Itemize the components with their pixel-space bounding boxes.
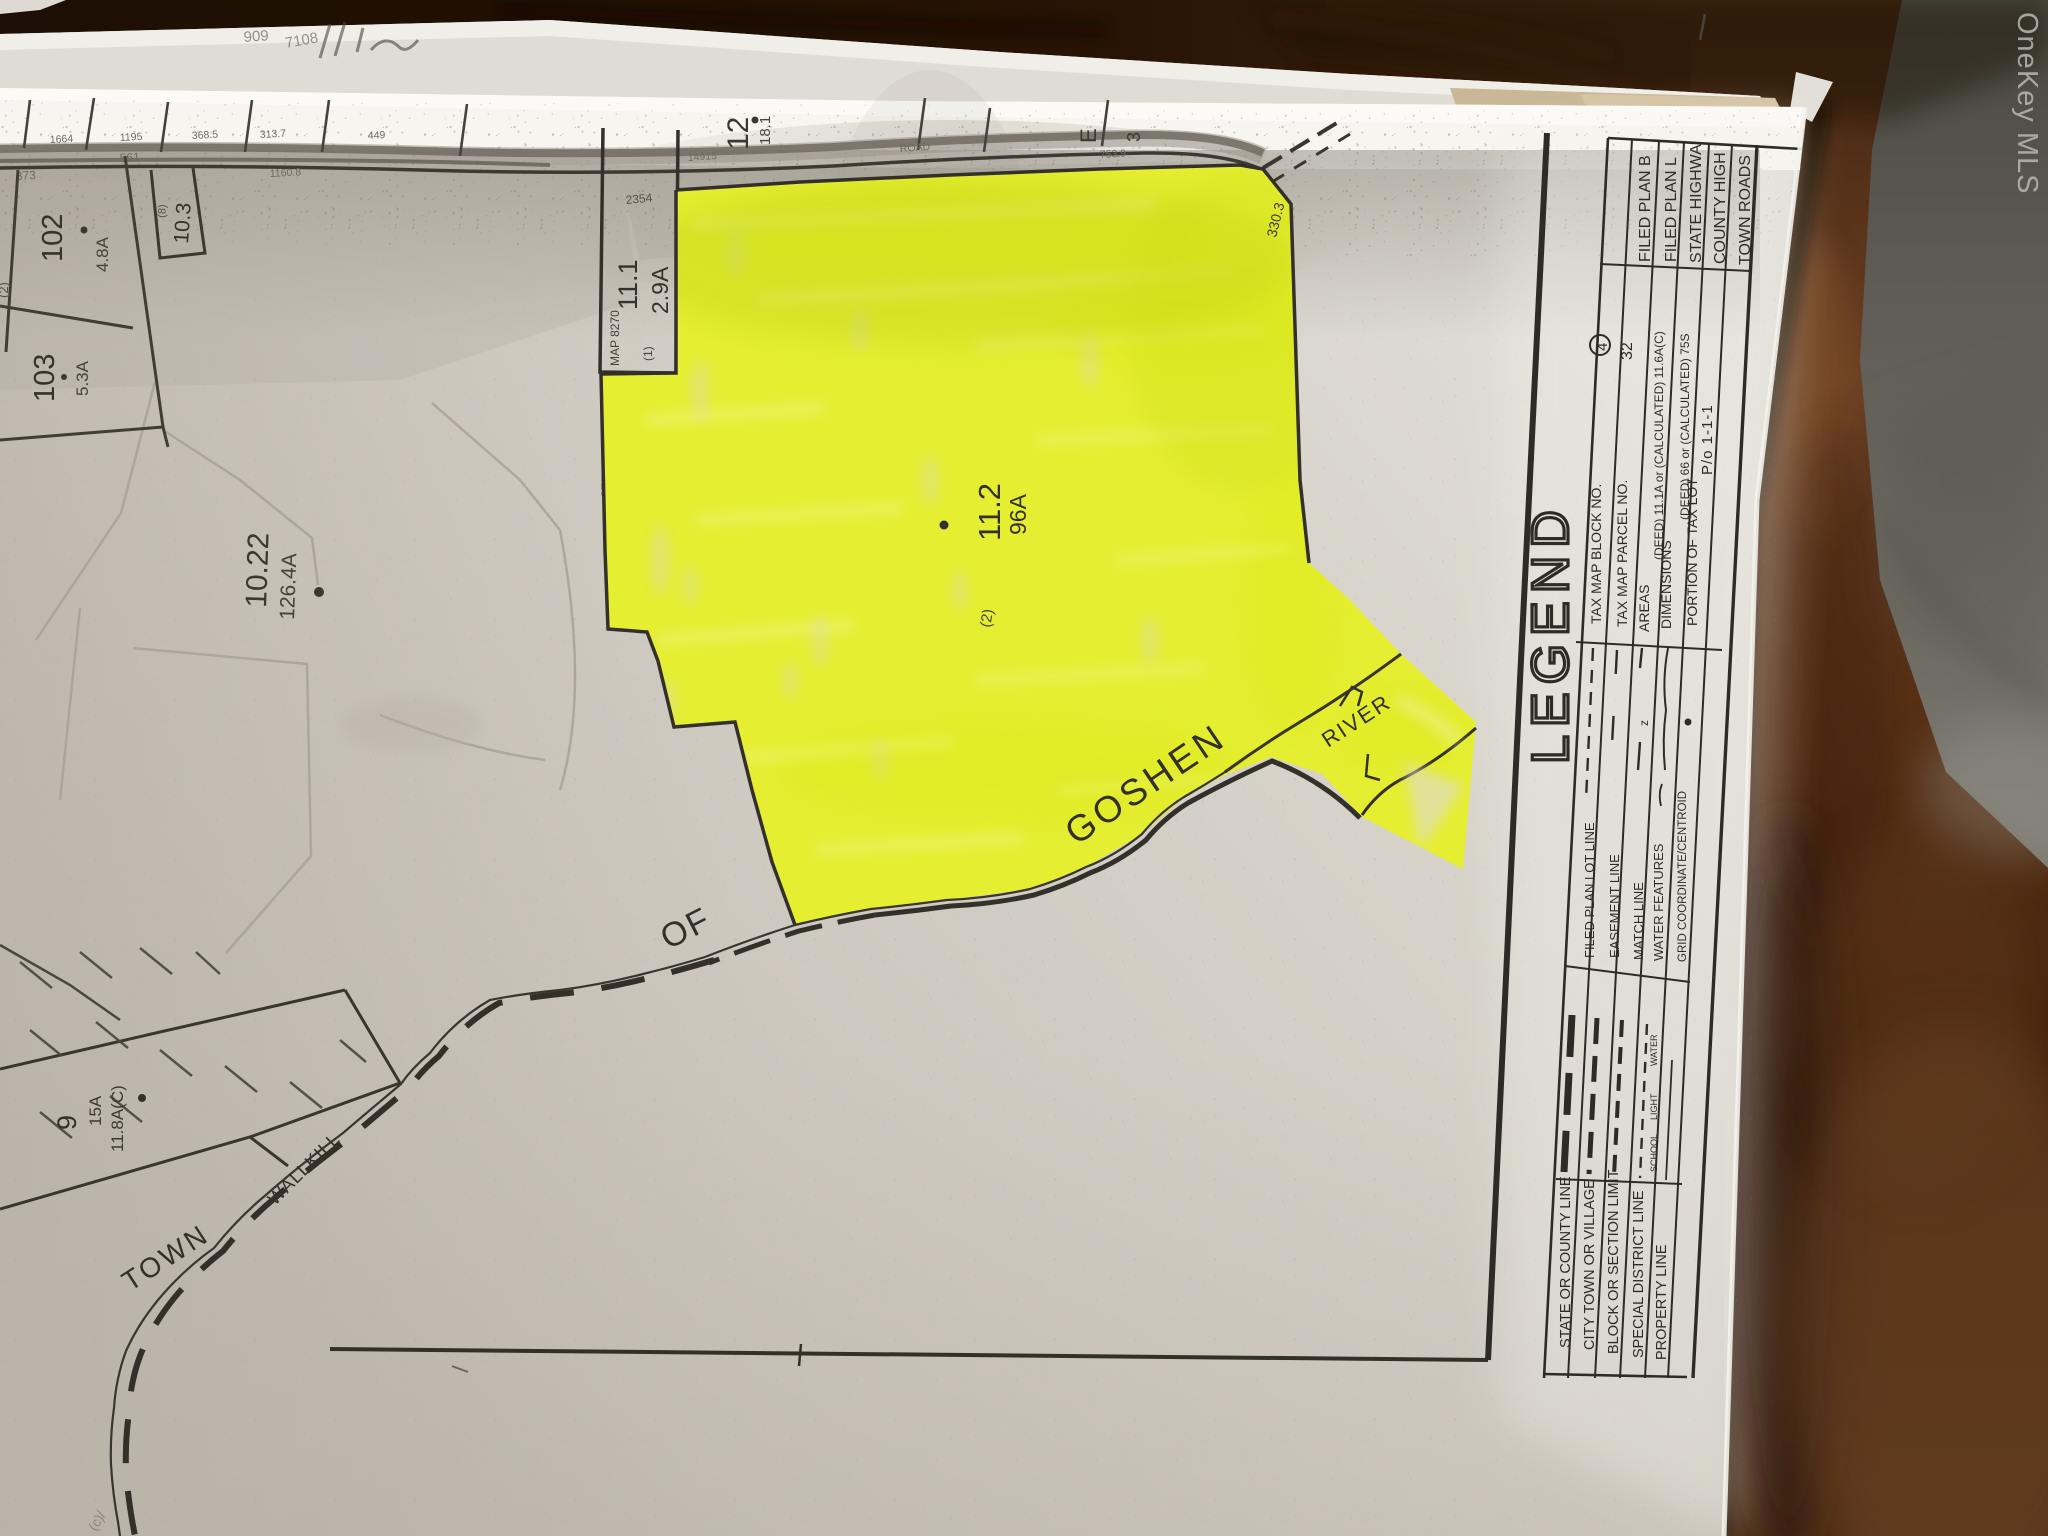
svg-text:SCHOOL: SCHOOL <box>1649 1134 1659 1172</box>
svg-text:5.3A: 5.3A <box>73 360 92 396</box>
svg-text:WATER FEATURES: WATER FEATURES <box>1651 843 1666 961</box>
svg-text:368.5: 368.5 <box>192 129 219 142</box>
svg-text:SPECIAL DISTRICT LINE: SPECIAL DISTRICT LINE <box>1631 1190 1647 1358</box>
svg-text:313.7: 313.7 <box>260 128 287 141</box>
svg-text:TOWN ROADS: TOWN ROADS <box>1737 155 1754 265</box>
svg-text:4: 4 <box>1594 343 1611 351</box>
svg-text:LEGEND: LEGEND <box>1522 502 1580 764</box>
svg-text:TAX MAP BLOCK NO.: TAX MAP BLOCK NO. <box>1588 484 1604 624</box>
svg-text:COUNTY HIGH: COUNTY HIGH <box>1712 152 1729 264</box>
svg-text:STATE HIGHWA: STATE HIGHWA <box>1688 144 1705 263</box>
svg-text:2.9A: 2.9A <box>647 266 673 314</box>
svg-text:561: 561 <box>119 150 140 165</box>
svg-text:3: 3 <box>1124 132 1144 142</box>
svg-text:10.3: 10.3 <box>170 202 196 244</box>
svg-text:PROPERTY LINE: PROPERTY LINE <box>1654 1244 1670 1360</box>
svg-text:4.8A: 4.8A <box>93 236 112 272</box>
svg-text:LIGHT: LIGHT <box>1649 1093 1659 1120</box>
svg-text:MATCH LINE: MATCH LINE <box>1631 882 1646 960</box>
svg-text:(2): (2) <box>0 282 11 298</box>
svg-text:14915: 14915 <box>687 150 717 164</box>
svg-text:15A: 15A <box>86 1095 105 1126</box>
svg-text:E: E <box>1076 128 1101 143</box>
svg-text:11.2: 11.2 <box>972 483 1007 541</box>
svg-text:WATER: WATER <box>1649 1034 1659 1066</box>
svg-text:TAX MAP PARCEL NO.: TAX MAP PARCEL NO. <box>1614 480 1630 627</box>
svg-text:ROAD: ROAD <box>899 141 931 155</box>
svg-text:P/o 1-1-1: P/o 1-1-1 <box>1699 404 1716 475</box>
svg-text:FILED PLAN B: FILED PLAN B <box>1637 155 1654 262</box>
svg-text:11.8A(C): 11.8A(C) <box>108 1085 127 1152</box>
svg-text:1195: 1195 <box>120 131 143 144</box>
svg-text:z: z <box>1637 720 1651 726</box>
svg-text:449: 449 <box>368 129 386 142</box>
svg-text:18.1: 18.1 <box>757 116 774 145</box>
svg-text:AREAS: AREAS <box>1636 585 1652 632</box>
svg-text:GRID COORDINATE/CENTROID: GRID COORDINATE/CENTROID <box>1677 791 1689 962</box>
svg-text:DIMENSIONS: DIMENSIONS <box>1658 540 1674 629</box>
svg-text:1664: 1664 <box>50 133 74 146</box>
svg-text:10.22: 10.22 <box>240 532 276 608</box>
svg-text:MAP 8270: MAP 8270 <box>608 310 622 366</box>
svg-text:9: 9 <box>52 1115 82 1130</box>
svg-text:753.9: 753.9 <box>1100 148 1127 161</box>
svg-text:96A: 96A <box>1005 493 1031 535</box>
svg-text:103: 103 <box>29 354 61 402</box>
svg-text:BLOCK OR SECTION LIMIT: BLOCK OR SECTION LIMIT <box>1606 1169 1622 1354</box>
svg-text:FILED PLAN LOT LINE: FILED PLAN LOT LINE <box>1582 822 1597 958</box>
svg-text:FILED PLAN L: FILED PLAN L <box>1663 157 1680 262</box>
svg-text:1160.8: 1160.8 <box>270 166 302 180</box>
svg-text:102: 102 <box>37 214 69 262</box>
svg-text:STATE OR COUNTY LINE: STATE OR COUNTY LINE <box>1558 1176 1574 1348</box>
svg-text:(2): (2) <box>977 608 997 629</box>
svg-text:32: 32 <box>1619 342 1636 360</box>
svg-text:12: 12 <box>722 117 755 150</box>
svg-text:CITY TOWN OR VILLAGE: CITY TOWN OR VILLAGE <box>1582 1179 1598 1350</box>
svg-text:EASEMENT LINE: EASEMENT LINE <box>1607 854 1622 958</box>
svg-text:11.1: 11.1 <box>613 259 643 310</box>
svg-text:909: 909 <box>243 27 269 46</box>
svg-text:(8): (8) <box>156 204 169 218</box>
svg-text:PORTION OF TAX LOT: PORTION OF TAX LOT <box>1684 478 1700 626</box>
svg-text:126.4A: 126.4A <box>276 553 301 620</box>
svg-text:(DEED) 11.1A or (CALCULATED) 1: (DEED) 11.1A or (CALCULATED) 11.6A(C) <box>1652 331 1666 560</box>
svg-text:OneKey MLS: OneKey MLS <box>2011 12 2043 194</box>
svg-text:2354: 2354 <box>625 191 653 207</box>
svg-text:(1): (1) <box>641 346 655 361</box>
